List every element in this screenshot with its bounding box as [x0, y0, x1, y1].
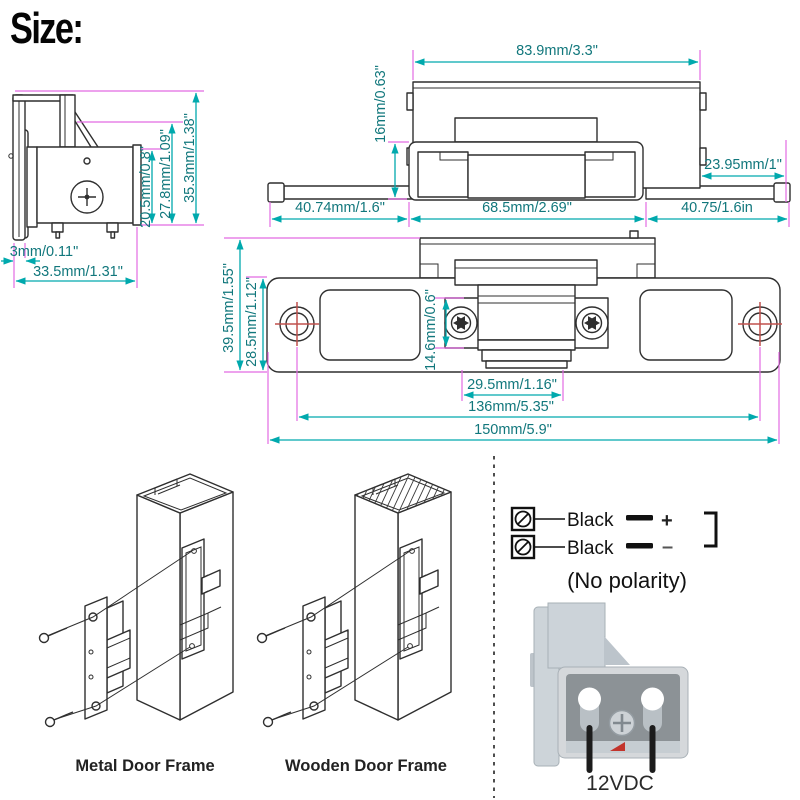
wire1-label: Black	[567, 510, 614, 531]
diagram-page: Size:	[0, 0, 800, 800]
dim-mid-height: 27.8mm/1.09"	[158, 129, 174, 219]
plus-sign: +	[661, 510, 673, 532]
top-view-drawing	[268, 82, 790, 202]
metal-frame-label: Metal Door Frame	[75, 757, 214, 775]
polarity-note: (No polarity)	[567, 568, 687, 593]
dim-plate-thickness: 3mm/0.11"	[10, 244, 79, 260]
dim-right-wing: 40.75/1.6in	[681, 200, 753, 216]
wire2-label: Black	[567, 538, 614, 559]
side-view: 20.5mm/0.8" 27.8mm/1.09" 35.3mm/1.38" 3m…	[1, 91, 204, 288]
dim-body-depth: 16mm/0.63"	[373, 65, 389, 143]
front-view: 39.5mm/1.55" 28.5mm/1.12" 14.6mm/0.6" 29…	[221, 231, 782, 444]
dim-total-height: 35.3mm/1.38"	[182, 113, 198, 203]
dim-total-length: 150mm/5.9"	[474, 422, 552, 438]
top-view: 83.9mm/3.3" 16mm/0.63" 23.95mm/1" 40.74m…	[268, 43, 790, 227]
technical-drawing: 20.5mm/0.8" 27.8mm/1.09" 35.3mm/1.38" 3m…	[0, 0, 800, 800]
bracket-icon	[704, 513, 716, 546]
dim-hole-spacing: 136mm/5.35"	[468, 399, 554, 415]
dim-body-height: 20.5mm/0.8"	[138, 146, 154, 228]
dim-body-width: 83.9mm/3.3"	[516, 43, 598, 59]
dim-inner-height: 28.5mm/1.12"	[244, 277, 260, 367]
wooden-frame-label: Wooden Door Frame	[285, 757, 447, 775]
metal-frame-illustration: Metal Door Frame	[40, 474, 234, 775]
minus-sign: –	[662, 536, 673, 558]
dim-plate-height: 39.5mm/1.55"	[221, 263, 237, 353]
dim-left-wing: 40.74mm/1.6"	[295, 200, 385, 216]
dim-total-depth: 33.5mm/1.31"	[33, 264, 123, 280]
power-illustration: 12VDC	[530, 603, 688, 795]
dim-keeper-height: 14.6mm/0.6"	[423, 289, 439, 371]
terminal-screw-icon	[512, 508, 534, 530]
front-view-drawing	[267, 231, 782, 372]
wire2-dash	[626, 543, 653, 549]
voltage-label: 12VDC	[586, 772, 654, 795]
terminal-screw-icon	[512, 536, 534, 558]
wooden-frame-illustration: Wooden Door Frame	[258, 460, 480, 775]
side-view-drawing	[9, 95, 141, 240]
dim-right-offset: 23.95mm/1"	[704, 157, 782, 173]
wire1-dash	[626, 515, 653, 521]
dim-center: 68.5mm/2.69"	[482, 200, 572, 216]
dim-keeper-width: 29.5mm/1.16"	[467, 377, 557, 393]
wiring-diagram: Black Black + – (No polarity)	[512, 508, 716, 593]
